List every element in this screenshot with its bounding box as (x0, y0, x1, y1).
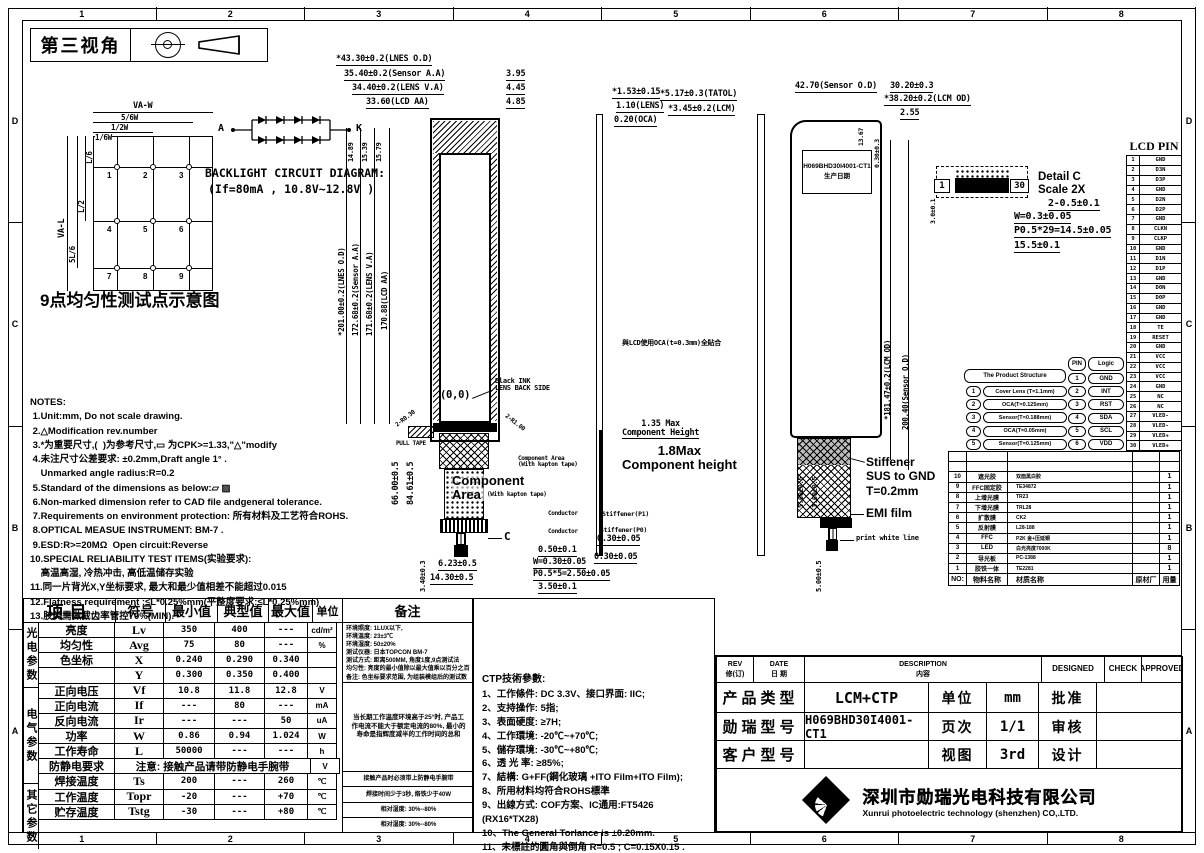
bom-footer-supplier: 原材厂 (1132, 573, 1160, 586)
page-value: 1/1 (986, 712, 1039, 741)
back-view-body: H069BHD30I4001-CT1 生产日期 (790, 120, 882, 438)
dim-label: VA-W (133, 102, 152, 111)
approve-value (1096, 682, 1183, 713)
dim-label: 1/2W (111, 124, 128, 132)
product-structure-row: 4 OCA(T=0.05mm) (966, 426, 1076, 437)
param-symbol: Topr (114, 789, 164, 805)
product-structure-row: 2 OCA(T=0.125mm) (966, 399, 1076, 410)
white-line-label: print white line (856, 535, 919, 542)
note-line: 8.OPTICAL MEASUE INSTRUMENT: BM-7 . (30, 524, 438, 538)
param-min: 75 (163, 637, 215, 653)
dim-label: L/2 (78, 200, 86, 213)
component-area-suffix: (With kapton tape) (487, 492, 547, 498)
note-line: 7.Requirements on environment protection… (30, 510, 438, 524)
note-line: 9.ESD:R>=20MΩ Open circuit:Reverse (30, 539, 438, 553)
dim-label: 15.79 (376, 142, 383, 162)
zone-column-label: 2 (157, 7, 306, 20)
ctp-pin-table: 1 GND 2 INT 3 RST 4 SDA 5 SCL 6 VDD (1068, 373, 1126, 452)
zone-row-label: C (1182, 223, 1196, 426)
param-name: 正向电压 (38, 683, 115, 699)
projection-circle-icon (155, 32, 181, 58)
test-point (150, 164, 156, 170)
pin-name: GND (1088, 373, 1124, 384)
param-max: 260 (264, 773, 308, 789)
check-header: CHECK (1104, 656, 1142, 683)
dim-label: 14.89 (348, 142, 355, 162)
back-fpc-stiffener-area (798, 439, 850, 465)
other-rows: 焊接温度 Ts 200 --- 260 ℃ 工作温度 Topr -20 --- … (39, 773, 343, 819)
param-symbol: Lv (114, 622, 164, 638)
date-header: DATE 日 期 (753, 656, 805, 683)
zone-column-label: 6 (751, 7, 900, 20)
detail-c-title: Detail C (1038, 171, 1081, 183)
uniformity-title: 9点均匀性测试点示意图 (40, 286, 219, 311)
layer-name: OCA(T=0.125mm) (983, 399, 1067, 410)
test-point-number: 1 (107, 171, 111, 180)
layer-number: 4 (966, 426, 981, 437)
zone-column-label: 2 (157, 833, 306, 845)
bom-rows: 10 遮光胶 双面黑白胶 1 9 FFC固定胶 TE34872 1 8 上增光膜… (948, 451, 1182, 574)
param-row: 工作温度 Topr -20 --- +70 ℃ (39, 789, 343, 805)
note-line: 5.Standard of the dimensions as below:▱ … (30, 482, 438, 496)
layer-name: Cover Lens (T=1.1mm) (983, 386, 1067, 397)
layer-name: OCA(T=0.05mm) (983, 426, 1067, 437)
zone-rows-right: DCBA (1182, 20, 1196, 833)
dim-label: 2-0.5±0.1 (1048, 199, 1100, 211)
param-symbol: If (114, 698, 164, 714)
parameters-table: 项目 符号 最小值 典型值 最大值 单位 备注 光电参数 电气参数 其它参数 亮… (23, 598, 473, 833)
param-max: --- (264, 637, 308, 653)
projection-cone-icon (197, 35, 243, 55)
layer-name: Sensor(T=0.125mm) (983, 439, 1067, 450)
ctp-spec-line: 1、工作條件: DC 3.3V、接口界面: IIC; (482, 688, 708, 702)
note-line: NOTES: (30, 396, 438, 410)
product-structure-row: 5 Sensor(T=0.125mm) (966, 439, 1076, 450)
pin-number: 4 (1068, 413, 1086, 424)
dim-label: 3.0±0.1 (930, 199, 937, 224)
bom-footer: NO: 物料名称 材质名称 原材厂 用量 (948, 573, 1182, 586)
dim-label: 170.88(LCD AA) (381, 271, 389, 330)
param-unit: h (307, 743, 337, 759)
dim-line (374, 128, 375, 424)
param-name: 反向电流 (38, 713, 115, 729)
dim-label: *201.00±0.2(LNES O.D) (338, 247, 346, 336)
dim-label: 0.50±0.1 (538, 546, 577, 557)
param-max: 50 (264, 713, 308, 729)
dim-label: 3.50±0.1 (538, 583, 577, 594)
remark-photometric: 环境照度: 1LUX以下, 环境温度: 23±3℃ 环境湿度: 50±20% 测… (343, 623, 474, 683)
ink-area-hatch (433, 121, 497, 153)
param-typ: 0.94 (214, 728, 265, 744)
col-typ: 典型值 (218, 599, 269, 623)
dim-label: P0.5*29=14.5±0.05 (1014, 226, 1111, 238)
zone-row-label: A (8, 630, 22, 833)
projection-symbols (131, 29, 267, 61)
edge-view-body (757, 114, 765, 556)
uniformity-diagram: VA-W 5/6W 1/2W 1/6W VA-L 5L/6 L/2 L/6 1 … (55, 88, 235, 308)
fpc-end-pad (454, 545, 468, 557)
param-symbol: Ir (114, 713, 164, 729)
param-name: 均匀性 (38, 637, 115, 653)
anode-label: A (218, 123, 224, 134)
dim-label: *38.20±0.2(LCM OD) (884, 95, 971, 106)
zone-row-label: D (8, 20, 22, 223)
test-point (186, 265, 192, 271)
test-point (186, 164, 192, 170)
product-structure-title: The Product Structure (964, 369, 1066, 383)
dim-label: *43.30±0.2(LNES O.D) (336, 55, 432, 66)
product-structure-row: 3 Sensor(T=0.188mm) (966, 412, 1076, 423)
remark-solder: 焊接时间少于3秒, 烙铁少于40W (343, 787, 474, 802)
dim-label: 42.70(Sensor O.D) (795, 82, 877, 93)
product-type-label: 产品类型 (716, 682, 805, 713)
ctp-pin-row: 3 RST (1068, 399, 1126, 410)
param-min: 200 (163, 773, 215, 789)
param-typ: 11.8 (214, 683, 265, 699)
photometric-rows: 亮度 Lv 350 400 --- cd/m² 均匀性 Avg 75 80 --… (39, 622, 343, 684)
param-typ: --- (214, 804, 265, 820)
rev-header: REV 修(订) (716, 656, 754, 683)
dim-label: 4.45 (506, 84, 525, 95)
zone-column-label: 8 (1048, 833, 1197, 845)
dim-label: 200.40(Sensor O.D) (902, 354, 910, 430)
dim-label: 3.40±0.3 (420, 561, 427, 592)
pull-tape-label: PULL TAPE (396, 441, 426, 447)
component-height-18: 1.8Max Component height (622, 444, 737, 473)
approved-header: APPROVED (1141, 656, 1183, 683)
dim-label: 6.23±0.5 (438, 560, 477, 571)
param-typ: 80 (214, 637, 265, 653)
layer-number: 5 (966, 439, 981, 450)
note-line: 10.SPECIAL RELIABILITY TEST ITEMS(实验要求): (30, 553, 438, 567)
ctp-spec-line: 7、結構: G+FF(鋼化玻璃 +ITO Film+ITO Film); (482, 771, 708, 785)
conductor-label: Conductor (548, 511, 578, 517)
leader-line (488, 538, 502, 539)
emi-film-bar (820, 518, 852, 528)
param-symbol: L (114, 743, 164, 759)
group-other: 其它参数 (24, 785, 39, 850)
param-max: --- (264, 698, 308, 714)
company-logo (803, 777, 849, 823)
param-row: 亮度 Lv 350 400 --- cd/m² (39, 622, 343, 638)
dim-label: 4.85 (506, 98, 525, 109)
dim-line (346, 128, 347, 424)
param-min: -30 (163, 804, 215, 820)
unit-value: mm (986, 682, 1039, 713)
col-max: 最大值 (269, 599, 313, 623)
design-label: 设计 (1038, 740, 1097, 769)
col-item: 项目 (24, 599, 116, 623)
ctp-pin-row: 4 SDA (1068, 413, 1126, 424)
param-min: 0.86 (163, 728, 215, 744)
design-value (1096, 740, 1183, 769)
param-name: 焊接温度 (38, 773, 115, 789)
dim-label: *5.17±0.3(TATOL) (660, 90, 737, 101)
dim-label: 171.68±0.2(LENS V.A) (366, 252, 374, 336)
dim-label: 84.61±0.5 (407, 462, 416, 505)
unit-label: 单位 (928, 682, 987, 713)
ctp-spec-line: 9、出線方式: COF方案、IC通用:FT5426 (RX16*TX28) (482, 799, 708, 827)
dim-label: 35.40±0.2(Sensor A.A) (344, 70, 445, 81)
param-row: 反向电流 Ir --- --- 50 uA (39, 713, 343, 729)
view-value: 3rd (986, 740, 1039, 769)
test-point-number: 7 (107, 272, 111, 281)
param-min: 350 (163, 622, 215, 638)
ctp-spec-title: CTP技術參數: (482, 673, 708, 688)
param-row: Y 0.300 0.350 0.400 (39, 667, 343, 683)
param-typ: --- (214, 789, 265, 805)
dim-line (67, 136, 68, 291)
param-typ: --- (214, 773, 265, 789)
param-max: --- (264, 622, 308, 638)
pin-name: INT (1088, 386, 1124, 397)
component-area-note: Component Area (With kapton tape) (518, 456, 578, 468)
product-label-model: H069BHD30I4001-CT1 (803, 162, 871, 172)
bom-table: 10 遮光胶 双面黑白胶 1 9 FFC固定胶 TE34872 1 8 上增光膜… (948, 452, 1182, 586)
param-unit: cd/m² (307, 622, 337, 638)
back-fpc-end-pad (826, 540, 838, 551)
layer-name: Sensor(T=0.188mm) (983, 412, 1067, 423)
param-min: 0.300 (163, 667, 215, 683)
description-header: DESCRIPTION 内容 (804, 656, 1042, 683)
zone-column-label: 7 (899, 7, 1048, 20)
param-row: 均匀性 Avg 75 80 --- % (39, 637, 343, 653)
param-max: 0.340 (264, 652, 308, 668)
dim-label: 14.30±0.5 (430, 574, 473, 585)
param-typ: 0.290 (214, 652, 265, 668)
dim-label: 0.30±0.3 (874, 139, 881, 168)
dim-label: 34.40±0.2(LENS V.A) (352, 84, 444, 95)
zone-row-label: C (8, 223, 22, 426)
zone-row-label: A (1182, 630, 1196, 833)
pin-number: 1 (1068, 373, 1086, 384)
param-typ: --- (214, 713, 265, 729)
pull-tape-tab (408, 426, 434, 438)
detail-c-scale: Scale 2X (1038, 184, 1085, 196)
zone-column-label: 3 (305, 833, 454, 845)
dim-label: 0.20(OCA) (614, 116, 657, 127)
test-point-number: 5 (143, 225, 147, 234)
param-name: 工作寿命 (38, 743, 115, 759)
active-area (439, 153, 491, 423)
bom-footer-no: NO: (948, 573, 967, 586)
engineering-drawing-sheet: 12345678 12345678 DCBA DCBA 第三视角 (0, 0, 1204, 853)
approve-label: 批准 (1038, 682, 1097, 713)
remark-antistatic: 接触产品时必须带上防静电手腕带 (343, 772, 474, 787)
detail-callout-c: C (504, 531, 510, 542)
ctp-pin-row: 5 SCL (1068, 426, 1126, 437)
ctp-spec-line: 4、工作環境: -20℃~+70℃; (482, 730, 708, 744)
param-row: 正向电流 If --- 80 --- mA (39, 698, 343, 714)
fpc-stem (456, 533, 466, 545)
remark-storage: 相对湿度: 30%--80% (343, 818, 474, 833)
bottom-edge-bar (433, 423, 497, 432)
dim-line (93, 122, 193, 123)
review-label: 审核 (1038, 712, 1097, 741)
fpc-connector (440, 519, 488, 533)
param-symbol: Tstg (114, 804, 164, 820)
col-min: 最小值 (166, 599, 218, 623)
model-value: H069BHD30I4001-CT1 (804, 712, 929, 741)
title-block: REV 修(订) DATE 日 期 DESCRIPTION 内容 DESIGNE… (715, 655, 1182, 833)
param-max: 0.400 (264, 667, 308, 683)
param-unit: V (310, 758, 340, 774)
dim-label: L/6 (86, 151, 94, 164)
note-line: 2.△Modification rev.number (30, 425, 438, 439)
test-point (114, 265, 120, 271)
leader-line (840, 540, 854, 541)
note-line: 3.*为重要尺寸,( )为参考尺寸,▭ 为CPK>=1.33,"△"modify (30, 439, 438, 453)
remark-operating: 相对湿度: 30%--80% (343, 803, 474, 818)
back-fpc-stem (828, 528, 837, 540)
param-min: --- (163, 713, 215, 729)
ctp-spec-lines: 1、工作條件: DC 3.3V、接口界面: IIC;2、支持操作: 5指;3、表… (482, 688, 708, 853)
test-point-number: 6 (179, 225, 183, 234)
param-symbol: W (114, 728, 164, 744)
test-point (150, 218, 156, 224)
dim-label: 5.00±0.5 (798, 477, 805, 508)
fpc-component-area (439, 433, 489, 469)
ctp-spec-box: CTP技術參數: 1、工作條件: DC 3.3V、接口界面: IIC;2、支持操… (473, 598, 715, 833)
zone-column-label: 1 (8, 7, 157, 20)
lcd-pin-row: 30 VLED+ (1126, 440, 1183, 451)
dim-label: 15.5±0.1 (1014, 241, 1060, 253)
param-max: --- (264, 743, 308, 759)
note-line: 4.未注尺寸公差要求: ±0.2mm,Draft angle 1° . (30, 453, 438, 467)
test-point-number: 2 (143, 171, 147, 180)
param-unit: ℃ (307, 773, 337, 789)
company-name-en: Xunrui photoelectric technology (shenzhe… (863, 808, 1097, 818)
pin-name: SCL (1088, 426, 1124, 437)
dim-label: 33.60(LCD AA) (366, 98, 429, 109)
test-point (150, 265, 156, 271)
lcd-pin-title: LCD PIN (1126, 138, 1182, 155)
test-point (186, 218, 192, 224)
param-unit (307, 667, 337, 683)
note-line: 高温高湿, 冷热冲击, 高低温储存实验 (30, 567, 438, 581)
ctp-spec-line: 2、支持操作: 5指; (482, 702, 708, 716)
param-row: 功率 W 0.86 0.94 1.024 W (39, 728, 343, 744)
zone-row-label: B (1182, 427, 1196, 630)
backlight-condition: (If=80mA , 10.8V~12.8V ) (208, 182, 374, 196)
param-max: +70 (264, 789, 308, 805)
param-min: --- (163, 698, 215, 714)
product-label-box: H069BHD30I4001-CT1 生产日期 (802, 150, 872, 194)
oca-bonding-note: 與LCD使用OCA(t=0.3mm)全貼合 (622, 340, 721, 347)
bom-footer-material: 材质名称 (1007, 573, 1133, 586)
param-unit: % (307, 637, 337, 653)
pin-name: VLED+ (1139, 440, 1182, 451)
dim-label: W=0.30±0.05 (533, 558, 586, 569)
lcd-pin-table: 1 GND 2 D3N 3 D3P 4 GND 5 D2N 6 D2P 7 GN… (1126, 156, 1183, 451)
review-value (1096, 712, 1183, 741)
test-point-number: 9 (179, 272, 183, 281)
company-names: 深圳市勋瑞光电科技有限公司 Xunrui photoelectric techn… (863, 783, 1097, 818)
pin-number: 30 (1126, 440, 1140, 451)
test-point (114, 164, 120, 170)
param-typ: --- (214, 743, 265, 759)
notes-block: NOTES: 1.Unit:mm, Do not scale drawing. … (30, 396, 438, 624)
note-line: Unmarked angle radius:R=0.2 (30, 467, 438, 481)
dim-label: 172.68±0.2(Sensor A.A) (352, 243, 360, 336)
param-symbol: Avg (114, 637, 164, 653)
group-photometric: 光电参数 (24, 623, 39, 688)
param-unit: ℃ (307, 804, 337, 820)
backlight-title: BACKLIGHT CIRCUIT DIAGRAM: (205, 166, 385, 180)
model-label: 勋瑞型号 (716, 712, 805, 741)
note-line: 11.同一片背光X,Y坐标要求, 最大和最少值相差不能超过0.015 (30, 581, 438, 595)
detail-c-teeth (955, 169, 1009, 178)
dim-label: *1.53±0.15 (612, 88, 660, 99)
param-name: 功率 (38, 728, 115, 744)
zone-column-label: 5 (602, 7, 751, 20)
group-electric: 电气参数 (24, 688, 39, 785)
page-label: 页次 (928, 712, 987, 741)
dim-line (389, 128, 390, 424)
dim-label: 5L/6 (69, 246, 77, 263)
detail-c-bar (955, 178, 1009, 193)
param-symbol: Vf (114, 683, 164, 699)
param-unit: uA (307, 713, 337, 729)
dim-label: 66.00±0.5 (392, 462, 401, 505)
param-row: 贮存温度 Tstg -30 --- +80 ℃ (39, 804, 343, 820)
zone-row-label: B (8, 427, 22, 630)
dim-label: 1/6W (95, 134, 112, 142)
logo-fan (815, 793, 839, 817)
product-structure-row: 1 Cover Lens (T=1.1mm) (966, 386, 1076, 397)
antistatic-notice: 注意: 接触产品请带防静电手腕带 (114, 758, 311, 774)
pin-name: SDA (1088, 413, 1124, 424)
pin-number: 3 (1068, 399, 1086, 410)
param-max: 12.8 (264, 683, 308, 699)
product-label-date: 生产日期 (824, 172, 850, 182)
stiffener-sus-note: Stiffener SUS to GND T=0.2mm (866, 455, 935, 498)
bom-footer-qty: 用量 (1159, 573, 1180, 586)
param-unit: V (307, 683, 337, 699)
dim-label: 2.55 (900, 109, 919, 120)
param-row: 工作寿命 L 50000 --- --- h (39, 743, 343, 759)
dim-label: P0.5*5=2.50±0.05 (533, 570, 610, 581)
designed-header: DESIGNED (1041, 656, 1105, 683)
test-point-number: 8 (143, 272, 147, 281)
pin30-box: 30 (1010, 179, 1029, 193)
zone-column-label: 4 (454, 7, 603, 20)
third-angle-label: 第三视角 (31, 29, 131, 61)
param-rows: 亮度 Lv 350 400 --- cd/m² 均匀性 Avg 75 80 --… (39, 623, 343, 820)
ctp-logic-header: Logic (1088, 357, 1124, 371)
zone-column-label: 8 (1048, 7, 1197, 20)
param-row: 焊接温度 Ts 200 --- 260 ℃ (39, 773, 343, 789)
test-point-number: 3 (179, 171, 183, 180)
dim-label: 0.30±0.05 (597, 535, 640, 546)
black-ink-label: Black INK LENS BACK SIDE (495, 378, 550, 392)
ctp-pin-row: 1 GND (1068, 373, 1126, 384)
param-symbol: Ts (114, 773, 164, 789)
conductor-label: Conductor (548, 529, 578, 535)
origin-label: (0,0) (440, 390, 470, 401)
param-name: 正向电流 (38, 698, 115, 714)
product-type-value: LCM+CTP (804, 682, 929, 713)
param-name: 贮存温度 (38, 804, 115, 820)
dim-line (360, 128, 361, 424)
product-structure-table: 1 Cover Lens (T=1.1mm) 2 OCA(T=0.125mm) … (966, 386, 1076, 452)
dim-label: 15.39 (362, 142, 369, 162)
stiffener-p1-label: Stiffener(P1) (602, 511, 649, 518)
dim-label: 5/6W (121, 114, 138, 122)
ctp-pin-row: 2 INT (1068, 386, 1126, 397)
ctp-spec-line: 11、未標註的圓角與倒角 R=0.5 ; C=0.15X0.15 . (482, 841, 708, 853)
leader-line (850, 514, 864, 515)
